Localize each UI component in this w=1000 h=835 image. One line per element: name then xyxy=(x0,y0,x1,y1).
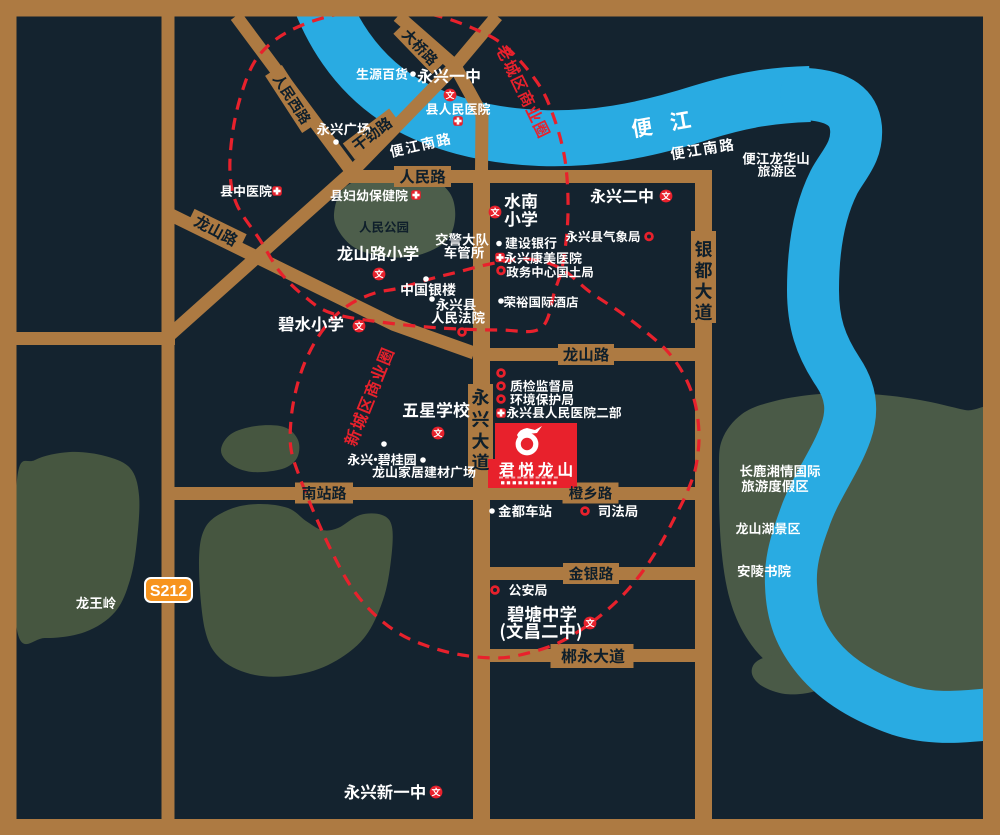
svg-text:S212: S212 xyxy=(150,583,187,600)
